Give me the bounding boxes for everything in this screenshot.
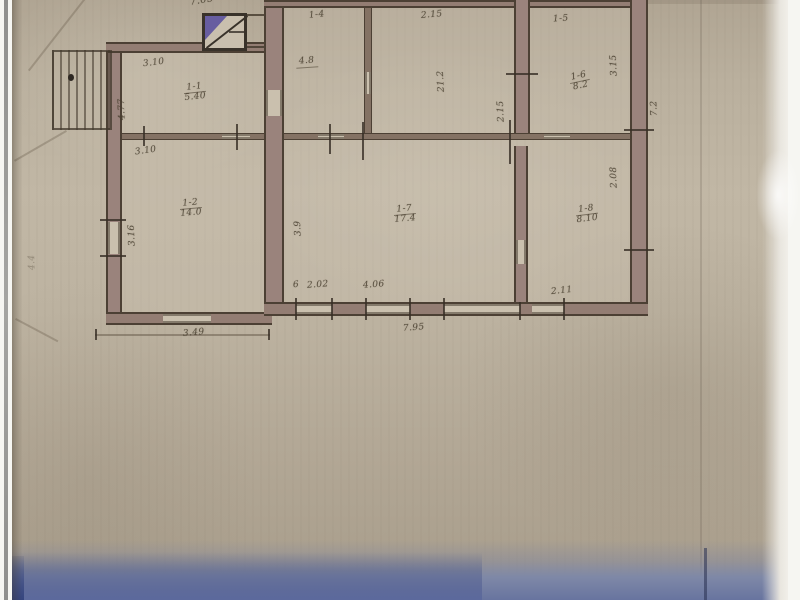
dimension-tick	[331, 298, 333, 320]
crease-line	[704, 548, 707, 600]
dimension-label: 7.2	[649, 72, 660, 116]
door-opening	[318, 134, 344, 139]
wall	[264, 0, 284, 314]
door-opening	[365, 72, 371, 94]
window-opening	[444, 304, 520, 314]
dimension-tick	[365, 298, 367, 320]
floor-plan-photo: 7.05 1-1 5.40 3.10 4.77 1-2 14.0 3.10 3.…	[0, 0, 800, 600]
dimension-label: 2.15	[421, 10, 443, 21]
wall	[514, 0, 530, 133]
dimension-label: 7.95	[403, 323, 425, 334]
door-opening	[266, 90, 282, 116]
dimension-label: 2.02	[307, 280, 329, 291]
stove-icon	[202, 13, 247, 51]
dimension-tick	[624, 129, 654, 131]
dimension-tick	[95, 329, 97, 340]
dimension-label: 6	[293, 281, 300, 291]
dimension-label: 4.77	[117, 84, 128, 120]
porch-steps	[52, 50, 112, 130]
dimension-label: 4.4	[27, 240, 37, 270]
dimension-label: 4.06	[363, 280, 385, 291]
dimension-tick	[268, 329, 270, 340]
dimension-label: 2.15	[496, 86, 507, 122]
wall	[364, 8, 372, 133]
wall	[264, 0, 648, 8]
dimension-tick	[624, 249, 654, 251]
dimension-tick	[509, 120, 511, 164]
scan-margin-right	[788, 0, 800, 600]
main-building-interior	[284, 8, 630, 302]
dimension-tick	[443, 298, 445, 320]
dimension-label: 3.15	[609, 42, 620, 76]
room-label: 1-6 8.2	[568, 70, 591, 94]
dimension-label: 3.9	[293, 202, 304, 236]
dimension-tick	[409, 298, 411, 320]
dimension-tick	[236, 124, 238, 150]
dimension-tick	[143, 126, 145, 146]
window-opening	[366, 304, 410, 314]
dimension-tick	[100, 255, 126, 257]
dimension-label: 3.16	[127, 212, 138, 246]
room-label: 1-7 17.4	[393, 204, 416, 226]
room-label: 1-1 5.40	[183, 82, 207, 104]
crease-line	[700, 0, 702, 600]
door-opening	[544, 134, 570, 139]
paper-edge-fade-right	[762, 0, 788, 600]
stove-hatch	[205, 16, 227, 40]
wall	[514, 146, 528, 302]
room-tag: 1-4	[309, 10, 326, 21]
room-area: 14.0	[180, 208, 202, 219]
window-opening	[163, 314, 211, 323]
dimension-tick	[506, 73, 538, 75]
door-opening	[516, 240, 526, 264]
dimension-tick	[100, 219, 126, 221]
area-note: 21.2	[436, 52, 447, 92]
window-opening	[532, 304, 564, 314]
dimension-tick	[563, 298, 565, 320]
scan-glare	[756, 150, 800, 240]
dimension-label: 3.49	[183, 328, 205, 339]
dimension-label: 2.08	[609, 152, 620, 188]
stove-divider	[229, 31, 244, 33]
dimension-tick	[329, 124, 331, 154]
door-mark	[68, 74, 74, 81]
dimension-tick	[295, 298, 297, 320]
room-label: 1-8 8.10	[575, 204, 599, 226]
room-area: 17.4	[394, 214, 416, 225]
area-note: 4.8	[296, 56, 318, 69]
window-opening	[296, 304, 332, 314]
room-tag: 1-5	[553, 14, 569, 25]
wall	[630, 0, 648, 316]
table-edge-band-dark	[12, 552, 482, 600]
paper-edge-shadow-left	[12, 0, 22, 600]
window-opening	[108, 222, 120, 254]
room-label: 1-2 14.0	[179, 198, 202, 220]
scan-margin-left-line	[4, 0, 8, 600]
